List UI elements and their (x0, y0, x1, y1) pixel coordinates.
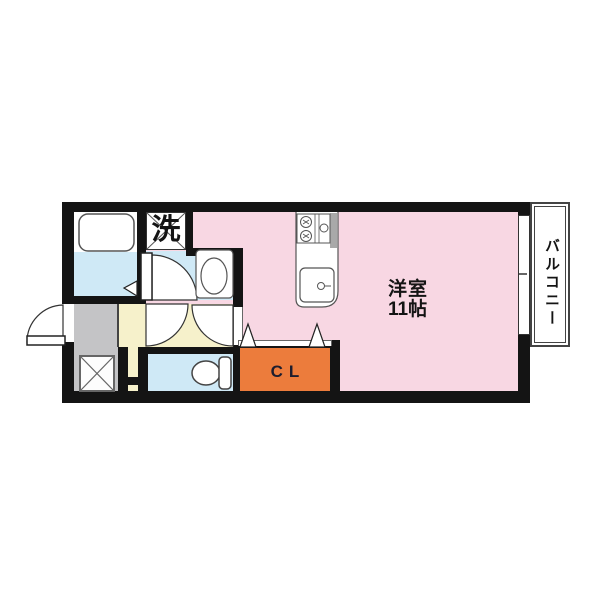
closet-door-marker-right (309, 324, 325, 347)
hallway-door-swing-left (146, 304, 188, 346)
washbasin (201, 258, 227, 294)
washroom-door-leaf (141, 253, 152, 300)
main-room-door-swing (192, 305, 233, 346)
kitchen-side-panel (330, 213, 337, 248)
main-room-name-label: 洋室 (388, 280, 428, 299)
kitchen-unit (296, 212, 338, 307)
fixtures-layer (0, 0, 600, 600)
faucet (318, 283, 325, 290)
shoe-cabinet (80, 356, 114, 391)
washroom-door-swing (152, 255, 197, 300)
floorplan-canvas: 洗 洋室 11帖 CL バルコニー (0, 0, 600, 600)
kitchen-sink (300, 268, 334, 302)
closet-label: CL (238, 363, 332, 380)
bathroom-door-marker (124, 281, 137, 296)
balcony-label: バルコニー (538, 224, 564, 342)
closet-door-marker-left (240, 324, 256, 347)
entrance-door-leaf (27, 336, 65, 345)
laundry-label: 洗 (146, 216, 186, 245)
stove-knob (320, 224, 328, 232)
bathtub (79, 214, 134, 251)
toilet-fixture (192, 357, 231, 389)
main-room-size-label: 11帖 (388, 300, 427, 319)
